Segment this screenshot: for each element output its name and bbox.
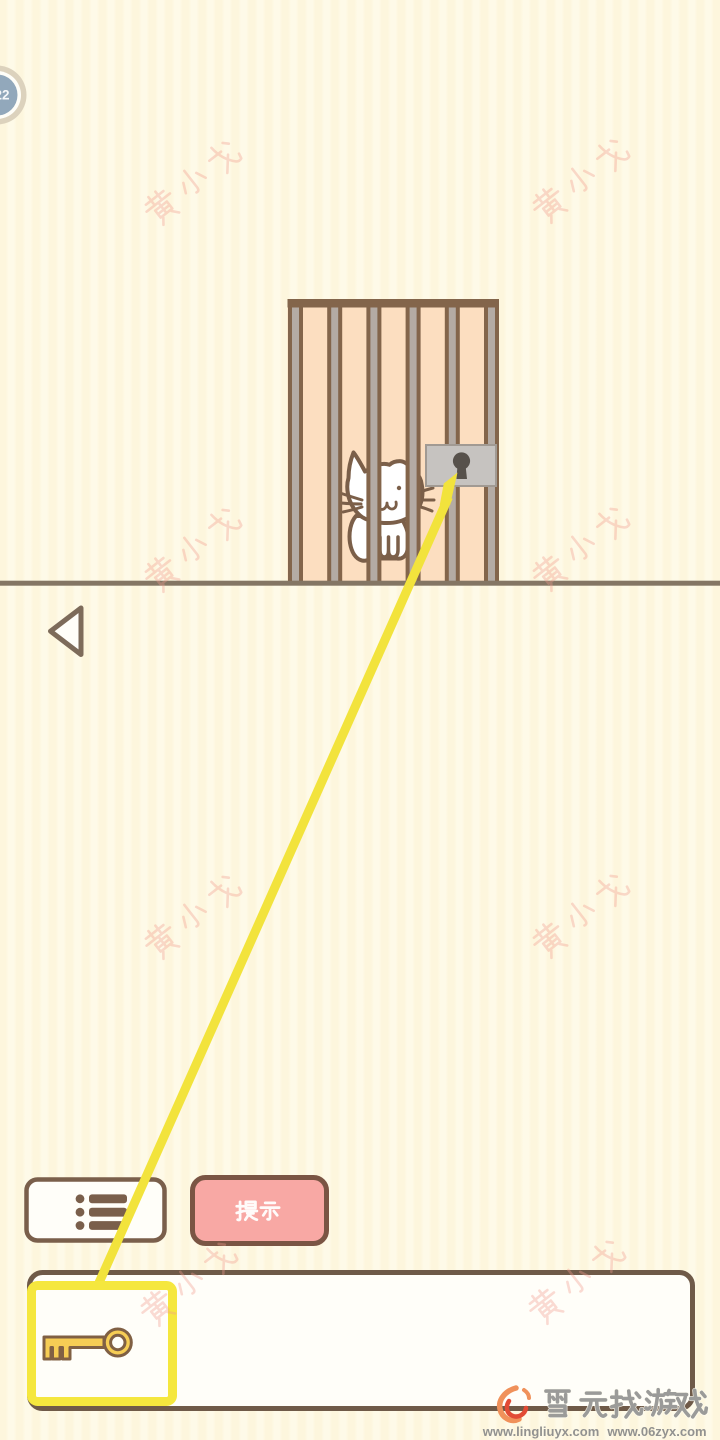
svg-text:22: 22 — [0, 88, 10, 103]
